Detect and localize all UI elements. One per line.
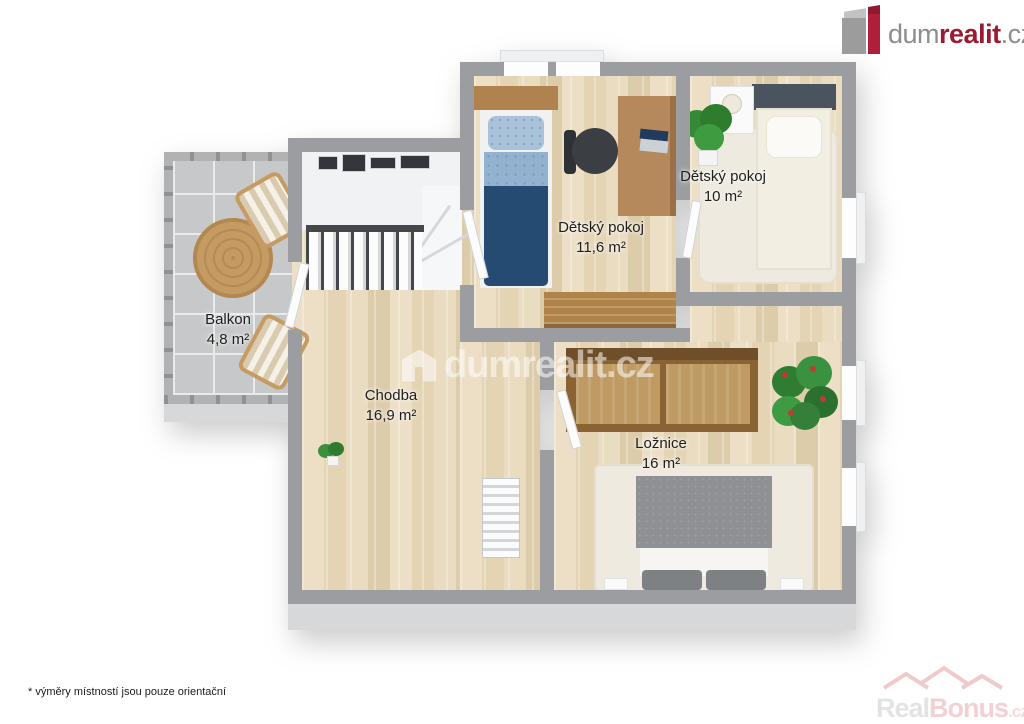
center-watermark: dumrealit.cz [402, 344, 654, 387]
kids1-bed-pillow [488, 116, 544, 150]
kids1-bed-blanket [484, 186, 548, 286]
bedroom-bed-pillow-right [706, 570, 766, 590]
room-label-detsky-pokoj-2: Dětský pokoj 10 m² [680, 167, 766, 206]
window-sill [856, 360, 866, 426]
logo-part-dum: dum [888, 19, 939, 49]
picture-frame [318, 156, 338, 170]
room-name: Ložnice [635, 434, 687, 454]
room-label-chodba: Chodba 16,9 m² [365, 386, 418, 425]
window-sill [856, 462, 866, 532]
room-area: 4,8 m² [205, 330, 251, 350]
hallway-plant [318, 442, 348, 474]
sideboard [544, 292, 676, 328]
room-area: 16 m² [635, 454, 687, 474]
room-label-detsky-pokoj-1: Dětský pokoj 11,6 m² [558, 218, 644, 257]
dumrealit-logo: dumrealit.cz [842, 10, 1024, 58]
wall [460, 328, 690, 342]
picture-frame [342, 154, 366, 172]
center-watermark-text: dumrealit.cz [444, 344, 654, 387]
balcony-railing-left [164, 152, 173, 404]
radiator [482, 478, 520, 558]
window-sill [500, 50, 604, 62]
kids2-bed-headboard [752, 84, 836, 110]
kids1-bed-blanket-top [484, 152, 548, 186]
picture-frame [370, 157, 396, 169]
realbonus-part-cz: .cz [1008, 702, 1024, 721]
wall [540, 450, 554, 590]
window-sill [856, 192, 866, 264]
dumrealit-logo-icon [842, 10, 882, 58]
floor-bedroom-upper [690, 306, 842, 342]
logo-icon-body-gray [842, 18, 866, 54]
floorplan-screenshot: Balkon 4,8 m² Chodba 16,9 m² Dětský poko… [0, 0, 1024, 724]
room-name: Balkon [205, 310, 251, 330]
realbonus-part-real: Real [876, 693, 929, 723]
realbonus-part-bonus: Bonus [929, 693, 1008, 723]
dumrealit-logo-text: dumrealit.cz [888, 19, 1024, 50]
bedroom-nightstand-left [604, 578, 628, 590]
wall [676, 292, 856, 306]
logo-part-realit: realit [939, 19, 1001, 49]
room-area: 11,6 m² [558, 238, 644, 258]
room-name: Dětský pokoj [558, 218, 644, 238]
realbonus-watermark: RealBonus.cz [876, 664, 1024, 722]
window [842, 468, 856, 526]
room-name: Chodba [365, 386, 418, 406]
balcony-railing-top [164, 152, 295, 161]
window [504, 62, 548, 76]
picture-frame [400, 155, 430, 169]
bedroom-plant [766, 356, 840, 442]
desk [618, 96, 676, 216]
wall [460, 285, 474, 328]
stairs-balusters [306, 232, 424, 290]
stairs-railing [306, 225, 424, 232]
bedroom-nightstand-right [780, 578, 804, 590]
wall [288, 138, 302, 262]
wall [460, 62, 474, 210]
wall [288, 590, 856, 604]
room-area: 10 m² [680, 187, 766, 207]
footnote: * výměry místností jsou pouze orientační [28, 686, 226, 698]
room-label-balkon: Balkon 4,8 m² [205, 310, 251, 349]
bedroom-bed-pillow-left [642, 570, 702, 590]
wardrobe-door-right [666, 364, 750, 424]
wall [288, 138, 460, 152]
balcony-railing-bottom [164, 395, 295, 404]
kids1-bed-headboard [474, 86, 558, 110]
window [556, 62, 600, 76]
room-name: Dětský pokoj [680, 167, 766, 187]
realbonus-watermark-text: RealBonus.cz [876, 695, 1024, 722]
room-area: 16,9 m² [365, 406, 418, 426]
window [842, 198, 856, 258]
dumrealit-house-icon [402, 350, 436, 382]
bedroom-bed-blanket [636, 476, 772, 548]
wall-front-face [288, 604, 856, 630]
desk-chair [572, 128, 618, 174]
window [842, 366, 856, 420]
kids2-bed-pillow [766, 116, 822, 158]
logo-part-cz: .cz [1001, 19, 1024, 49]
wall [288, 330, 302, 604]
logo-icon-body-red [868, 14, 880, 54]
realbonus-roofs-icon [876, 664, 1016, 690]
balcony-front-face [164, 404, 295, 422]
room-label-loznice: Ložnice 16 m² [635, 434, 687, 473]
